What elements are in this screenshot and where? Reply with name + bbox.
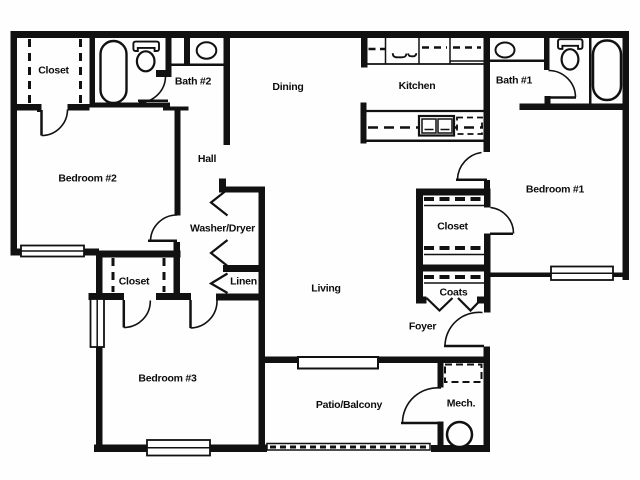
- svg-text:Bedroom #3: Bedroom #3: [138, 373, 197, 385]
- svg-text:Closet: Closet: [437, 221, 468, 233]
- svg-text:Washer/Dryer: Washer/Dryer: [190, 223, 255, 235]
- svg-text:Dining: Dining: [272, 81, 303, 93]
- svg-text:Hall: Hall: [198, 153, 217, 165]
- svg-text:Bedroom #1: Bedroom #1: [526, 184, 585, 196]
- svg-text:Bath #2: Bath #2: [175, 76, 212, 88]
- svg-text:Closet: Closet: [38, 65, 69, 77]
- svg-text:Patio/Balcony: Patio/Balcony: [316, 399, 383, 411]
- svg-text:Bedroom #2: Bedroom #2: [58, 173, 117, 185]
- svg-text:Linen: Linen: [230, 276, 257, 288]
- svg-text:Living: Living: [311, 283, 340, 295]
- svg-text:Closet: Closet: [119, 276, 150, 288]
- svg-text:Bath #1: Bath #1: [496, 75, 533, 87]
- svg-text:Foyer: Foyer: [409, 321, 437, 333]
- svg-text:Coats: Coats: [440, 287, 468, 299]
- svg-text:Kitchen: Kitchen: [399, 80, 436, 92]
- svg-text:Mech.: Mech.: [447, 398, 476, 410]
